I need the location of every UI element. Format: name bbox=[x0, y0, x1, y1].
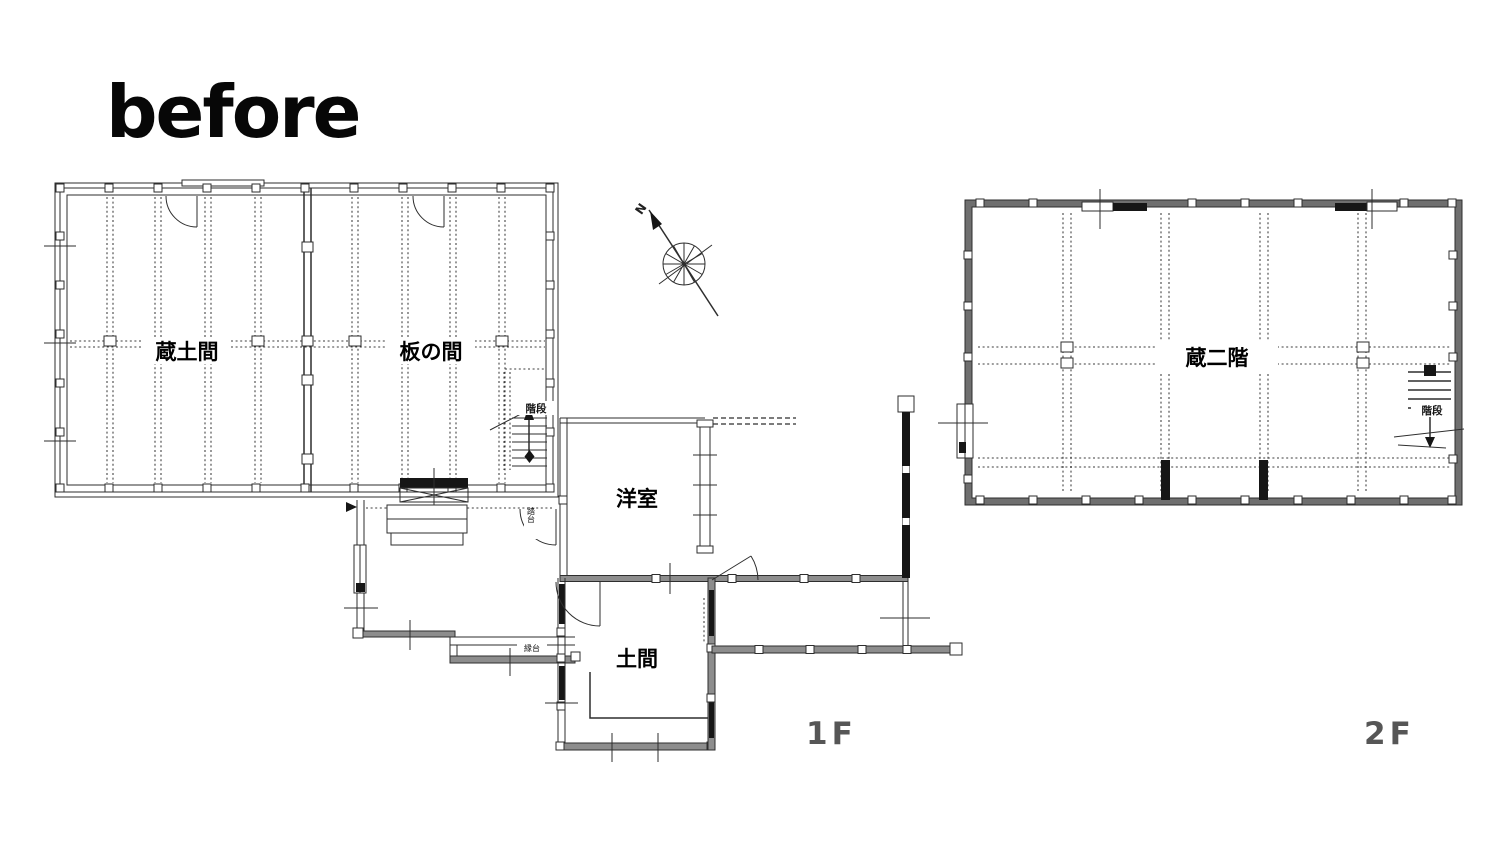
room-label-kura-doma: 蔵土間 bbox=[156, 340, 219, 364]
floor1-annex-bottom-wall bbox=[353, 620, 455, 650]
stairs-label-2f: 階段 bbox=[1422, 404, 1444, 417]
floorplan-drawing: before bbox=[0, 0, 1500, 844]
north-compass: N bbox=[632, 201, 718, 316]
kura-door-right bbox=[413, 196, 444, 227]
room-label-ita-no-ma: 板の間 bbox=[400, 340, 463, 364]
floor1-kura-wall-columns bbox=[44, 184, 554, 492]
page-title: before bbox=[106, 70, 360, 154]
floor1-caption: 1F bbox=[806, 716, 857, 752]
floor1-east-walls bbox=[712, 396, 962, 655]
floor2-left-window bbox=[938, 404, 988, 458]
floor1-kura-center-partition-wall bbox=[302, 188, 313, 492]
floor2-staircase: 階段 bbox=[1394, 365, 1464, 448]
north-label: N bbox=[632, 201, 649, 217]
floor1-annex-left-wall bbox=[344, 500, 378, 637]
floor2-top-windows bbox=[1082, 189, 1397, 229]
floor1-south-corridor-wall bbox=[560, 563, 908, 594]
kura-door-left bbox=[166, 196, 197, 227]
annotation-step-board: 踏台 bbox=[527, 506, 536, 524]
room-label-youshitsu: 洋室 bbox=[616, 487, 658, 511]
floor1-youshitsu-walls bbox=[559, 418, 796, 578]
room-label-doma: 土間 bbox=[616, 647, 658, 671]
room-label-kura-nikai: 蔵二階 bbox=[1186, 346, 1249, 370]
stairs-label-1f: 階段 bbox=[526, 402, 547, 415]
floor1-annex-entrance bbox=[346, 468, 552, 545]
floor2-caption: 2F bbox=[1364, 716, 1415, 752]
annotation-bench: 縁台 bbox=[524, 643, 540, 653]
annex-inner-door: 踏台 bbox=[520, 506, 556, 545]
floorplan-page: before bbox=[0, 0, 1500, 844]
